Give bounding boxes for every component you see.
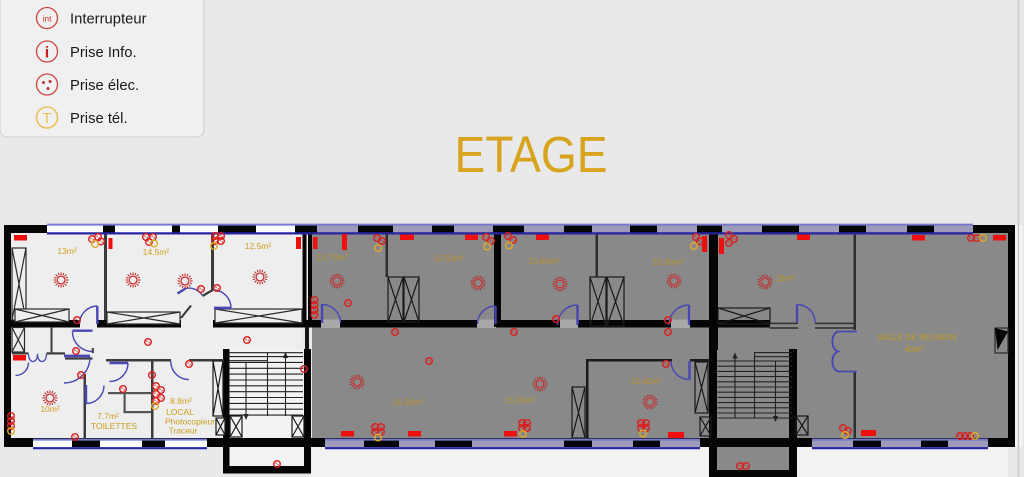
svg-text:40m²: 40m²	[904, 344, 924, 354]
svg-text:int: int	[43, 14, 53, 24]
svg-text:Prise élec.: Prise élec.	[70, 78, 139, 94]
svg-text:10m²: 10m²	[40, 404, 60, 414]
svg-text:13.60m²: 13.60m²	[630, 376, 661, 386]
svg-text:i: i	[45, 45, 49, 62]
svg-text:16.30m²: 16.30m²	[392, 397, 423, 407]
svg-text:LOCAL: LOCAL	[166, 407, 194, 417]
svg-text:12.5m²: 12.5m²	[245, 241, 272, 251]
svg-text:SALLE DE REUNION: SALLE DE REUNION	[878, 332, 957, 342]
svg-text:7.7m²: 7.7m²	[97, 411, 119, 421]
svg-text:13m²: 13m²	[57, 246, 77, 256]
svg-text:ETAGE: ETAGE	[455, 126, 608, 183]
svg-text:19m²: 19m²	[775, 273, 795, 283]
svg-text:Traceur: Traceur	[169, 426, 198, 436]
svg-text:13.70m²: 13.70m²	[316, 252, 347, 262]
svg-text:13.50m²: 13.50m²	[433, 253, 464, 263]
svg-text:14.5m²: 14.5m²	[143, 247, 170, 257]
svg-text:10.50m²: 10.50m²	[652, 257, 683, 267]
svg-text:TOILETTES: TOILETTES	[91, 421, 137, 431]
svg-text:13.80m²: 13.80m²	[528, 256, 559, 266]
svg-text:Prise tél.: Prise tél.	[70, 111, 128, 127]
svg-text:Interrupteur: Interrupteur	[70, 12, 147, 28]
svg-text:T: T	[42, 110, 51, 127]
svg-text:15.50m²: 15.50m²	[504, 395, 535, 405]
svg-text:Prise Info.: Prise Info.	[70, 45, 137, 61]
svg-text:8.8m²: 8.8m²	[170, 396, 192, 406]
